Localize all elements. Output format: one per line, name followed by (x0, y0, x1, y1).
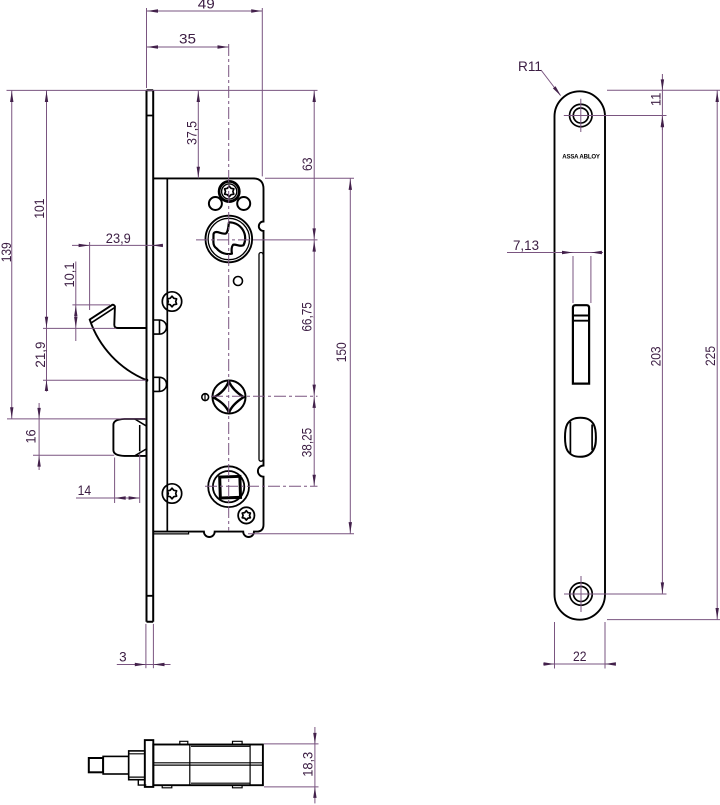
svg-text:ASSA ABLOY: ASSA ABLOY (562, 153, 601, 160)
svg-text:10,1: 10,1 (61, 262, 77, 287)
svg-text:14: 14 (78, 482, 92, 498)
svg-text:101: 101 (31, 198, 47, 218)
svg-text:225: 225 (702, 346, 718, 366)
svg-text:16: 16 (23, 429, 39, 443)
svg-text:38,25: 38,25 (298, 428, 314, 458)
svg-text:7,13: 7,13 (513, 237, 539, 253)
svg-text:3: 3 (119, 649, 127, 665)
svg-text:150: 150 (333, 342, 349, 362)
svg-text:23,9: 23,9 (106, 230, 131, 246)
svg-text:21,9: 21,9 (32, 341, 48, 367)
svg-text:66,75: 66,75 (298, 302, 314, 332)
svg-text:37,5: 37,5 (183, 121, 199, 145)
svg-text:18,3: 18,3 (300, 752, 316, 777)
svg-text:203: 203 (647, 346, 663, 366)
svg-text:35: 35 (179, 31, 196, 47)
svg-text:49: 49 (198, 0, 215, 12)
svg-text:R11: R11 (518, 58, 542, 74)
svg-text:139: 139 (0, 242, 14, 262)
svg-text:22: 22 (573, 648, 587, 664)
svg-text:63: 63 (299, 157, 315, 171)
svg-text:11: 11 (647, 92, 663, 106)
